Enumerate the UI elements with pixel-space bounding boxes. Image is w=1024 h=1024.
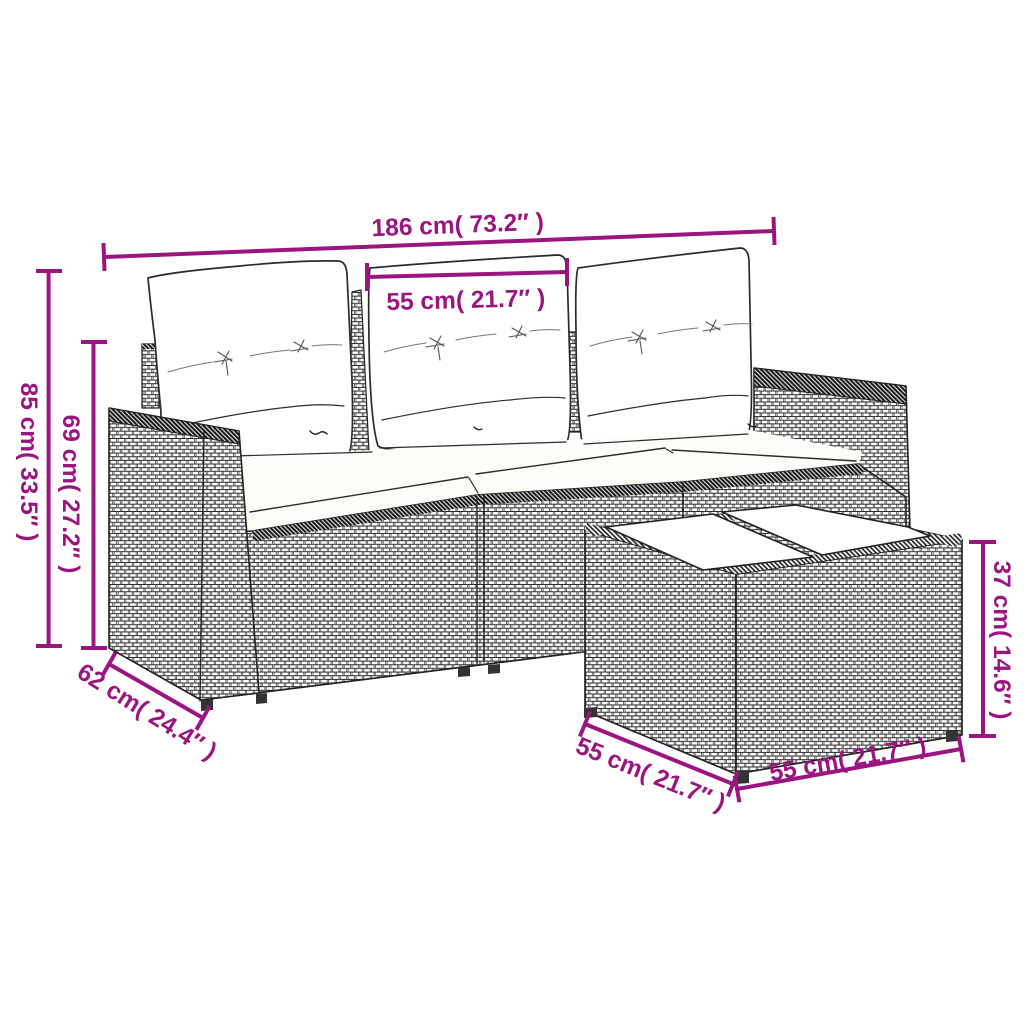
svg-text:37 cm( 14.6″ ): 37 cm( 14.6″ ) — [988, 561, 1015, 720]
svg-text:69 cm( 27.2″ ): 69 cm( 27.2″ ) — [57, 415, 84, 574]
svg-text:85 cm( 33.5″ ): 85 cm( 33.5″ ) — [15, 383, 42, 542]
svg-text:55 cm( 21.7″ ): 55 cm( 21.7″ ) — [386, 285, 545, 316]
